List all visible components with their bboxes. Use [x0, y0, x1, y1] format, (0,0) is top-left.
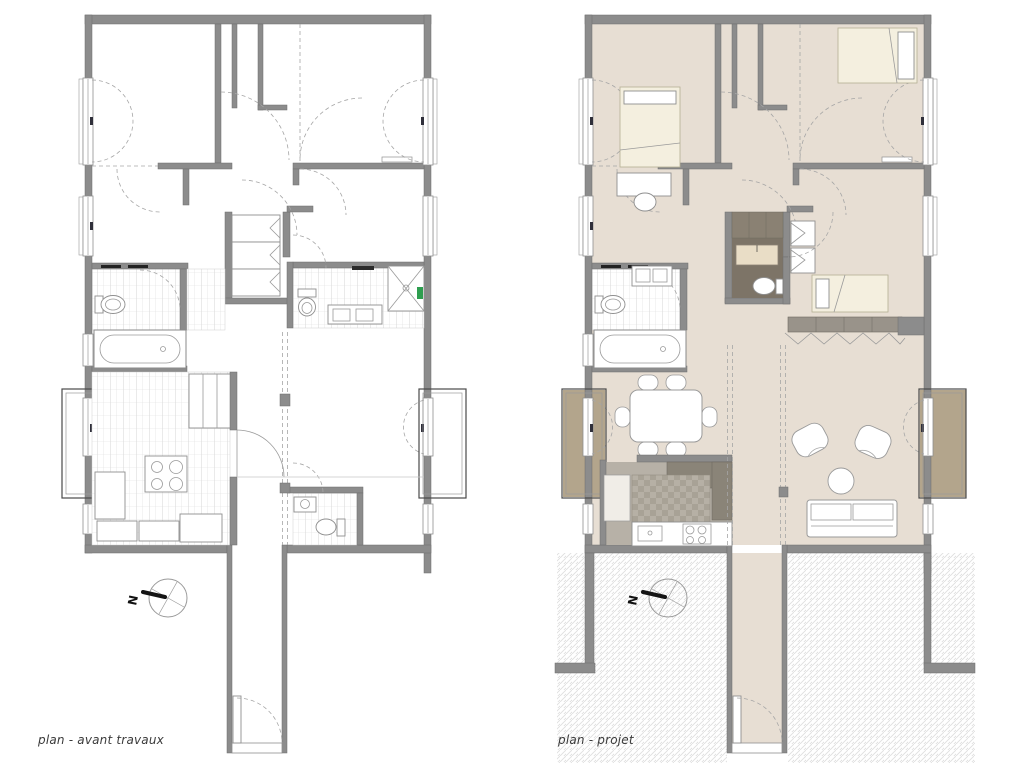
kitchen-projet	[600, 455, 732, 546]
shower-fitting-green	[417, 287, 423, 299]
desk-chair	[634, 193, 656, 211]
bathroom-2	[187, 235, 424, 330]
bedroom-top-right	[838, 28, 917, 83]
bedroom-1	[620, 87, 680, 167]
desk	[617, 173, 671, 196]
storage-unit	[788, 317, 902, 332]
toilet	[753, 278, 775, 295]
plan-avant-travaux: N	[62, 15, 466, 753]
fridge	[604, 475, 630, 521]
floor-plans-svg: N	[0, 0, 1024, 768]
adjacent-unit-hatch-right	[788, 553, 975, 763]
coffee-table	[828, 468, 854, 494]
floor-plan-sheet: N	[0, 0, 1024, 768]
plan-label-projet: plan - projet	[558, 733, 634, 747]
dining-table	[630, 390, 702, 442]
bathroom-1-vanity	[632, 266, 672, 286]
plan-label-avant-travaux: plan - avant travaux	[38, 733, 164, 747]
stove	[145, 456, 187, 492]
kitchen-avant	[92, 372, 284, 545]
sofa	[807, 500, 897, 537]
north-compass-avant: N	[125, 579, 187, 617]
closet-column	[232, 215, 280, 296]
north-label-avant: N	[125, 594, 141, 607]
central-shower-room	[732, 212, 790, 304]
plan-projet: N	[555, 15, 975, 763]
adjacent-unit-hatch-left	[557, 553, 727, 763]
wc-avant	[287, 463, 363, 545]
